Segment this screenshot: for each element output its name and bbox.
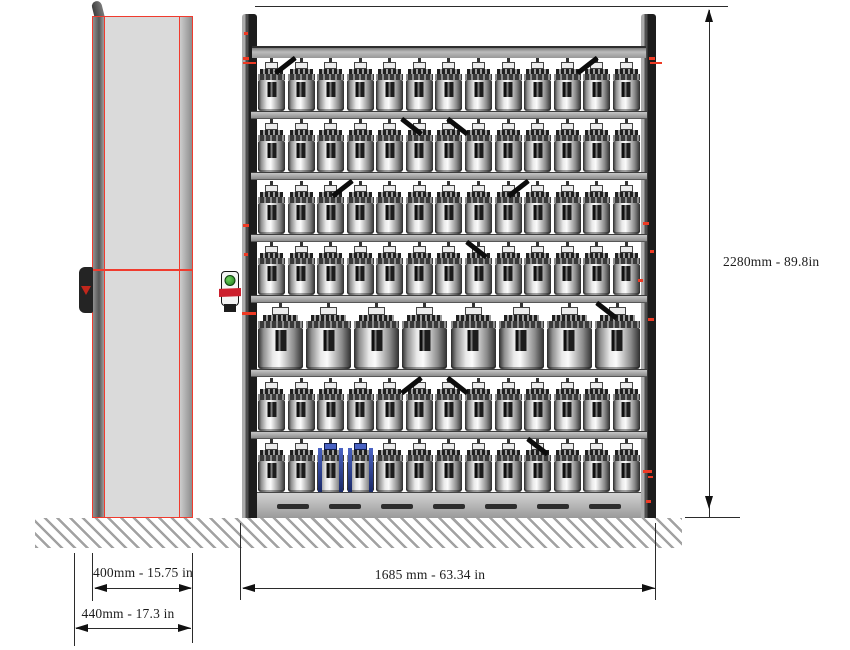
- gas-cylinder: [524, 378, 551, 431]
- cylinder-body: [524, 141, 551, 172]
- cylinder-body: [583, 203, 610, 234]
- cylinder-body: [495, 80, 522, 111]
- cylinder-body: [376, 80, 403, 111]
- gas-cylinder: [465, 181, 492, 234]
- cylinder-valve-head: [383, 123, 396, 130]
- arrowhead-left: [94, 584, 107, 592]
- cylinder-valve-head: [354, 185, 367, 192]
- cylinder-handle-slot: [468, 330, 479, 351]
- cylinder-valve-head: [320, 307, 337, 315]
- cylinder-body: [524, 461, 551, 492]
- cylinder-body: [258, 328, 303, 369]
- cylinder-shoulder: [451, 321, 496, 328]
- cylinder-body: [347, 80, 374, 111]
- cylinder-shoulder: [435, 197, 462, 203]
- base-vent-slot: [381, 504, 413, 509]
- gas-cylinder: [435, 181, 462, 234]
- gas-cylinder: [402, 303, 447, 369]
- cylinder-handle-slot: [474, 463, 483, 478]
- cylinder-handle-slot: [592, 266, 601, 281]
- gas-cylinder: [613, 439, 640, 492]
- gas-cylinder: [406, 58, 433, 111]
- cylinder-handle-slot: [297, 402, 306, 417]
- gas-cylinder: [258, 119, 285, 172]
- cylinder-handle-slot: [356, 266, 365, 281]
- cylinder-valve-head: [561, 62, 574, 69]
- cylinder-body: [554, 400, 581, 431]
- cabinet-side-view: [92, 16, 193, 518]
- cylinder-valve-head: [413, 443, 426, 450]
- cylinder-shoulder: [258, 394, 285, 400]
- cylinder-handle-slot: [474, 266, 483, 281]
- cylinder-valve-head: [502, 62, 515, 69]
- cylinder-shoulder: [406, 394, 433, 400]
- cylinder-handle-slot: [622, 143, 631, 158]
- cylinder-body: [583, 141, 610, 172]
- cylinder-handle-slot: [267, 266, 276, 281]
- cylinder-valve-head: [590, 443, 603, 450]
- cylinder-handle-slot: [415, 82, 424, 97]
- cylinder-handle-slot: [419, 330, 430, 351]
- cylinder-shoulder: [583, 455, 610, 461]
- gas-cylinder: [376, 181, 403, 234]
- cylinder-body: [554, 461, 581, 492]
- arrowhead-down: [705, 496, 713, 509]
- base-vent-slot: [589, 504, 621, 509]
- cylinder-valve-head: [531, 185, 544, 192]
- gas-cylinder: [554, 119, 581, 172]
- red-marker: [638, 279, 643, 282]
- cylinder-body: [258, 264, 285, 295]
- cylinder-body: [347, 461, 374, 492]
- cylinder-shoulder: [613, 394, 640, 400]
- base-vent-slot: [433, 504, 465, 509]
- regulator-base: [224, 304, 236, 312]
- cylinder-handle-slot: [533, 463, 542, 478]
- cylinder-valve-head: [383, 246, 396, 253]
- cylinder-valve-head: [472, 62, 485, 69]
- cylinder-shoulder: [583, 197, 610, 203]
- cylinder-body: [554, 264, 581, 295]
- cylinder-shoulder: [258, 197, 285, 203]
- cylinder-shoulder: [402, 321, 447, 328]
- cylinder-body: [524, 264, 551, 295]
- cylinder-valve-head: [620, 185, 633, 192]
- cylinder-body: [451, 328, 496, 369]
- cylinder-handle-slot: [622, 205, 631, 220]
- gas-cylinder: [613, 242, 640, 295]
- gas-cylinder: [406, 181, 433, 234]
- cylinder-body: [347, 141, 374, 172]
- cylinder-valve-head: [590, 123, 603, 130]
- cylinder-handle-slot: [385, 82, 394, 97]
- cylinder-handle-slot: [267, 402, 276, 417]
- arrowhead-right: [179, 584, 192, 592]
- gas-cylinder: [613, 58, 640, 111]
- gas-cylinder: [288, 181, 315, 234]
- cylinder-handle-slot: [533, 82, 542, 97]
- gas-cylinder-blue: [347, 439, 374, 492]
- red-marker: [643, 470, 652, 473]
- cylinder-valve-head: [265, 123, 278, 130]
- cylinder-valve-head: [272, 307, 289, 315]
- cylinder-shoulder: [613, 455, 640, 461]
- gas-cylinder: [288, 58, 315, 111]
- cylinder-body: [435, 461, 462, 492]
- arrowhead-right: [178, 624, 191, 632]
- cylinder-valve-head: [472, 123, 485, 130]
- arrowhead-left: [75, 624, 88, 632]
- cylinder-shoulder: [554, 455, 581, 461]
- gas-cylinder: [583, 181, 610, 234]
- cylinder-valve-head: [295, 185, 308, 192]
- ground-hatching: [35, 518, 682, 548]
- cylinder-body: [347, 264, 374, 295]
- cylinder-shoulder: [554, 197, 581, 203]
- gas-cylinder: [317, 58, 344, 111]
- gas-cylinder: [258, 242, 285, 295]
- cylinder-body: [402, 328, 447, 369]
- cylinder-body: [258, 203, 285, 234]
- cylinder-body: [495, 264, 522, 295]
- gas-cylinder: [347, 242, 374, 295]
- cylinder-body: [288, 400, 315, 431]
- cylinder-body: [613, 80, 640, 111]
- gas-cylinder: [376, 378, 403, 431]
- cylinder-body: [583, 264, 610, 295]
- cylinder-valve-head: [502, 382, 515, 389]
- cylinder-body: [306, 328, 351, 369]
- cylinder-valve-head: [531, 246, 544, 253]
- cylinder-valve-head: [561, 382, 574, 389]
- cylinder-valve-head: [295, 246, 308, 253]
- cylinder-body: [547, 328, 592, 369]
- cylinder-body: [406, 80, 433, 111]
- gas-cylinder: [347, 378, 374, 431]
- rack-shelf-area: [258, 58, 640, 492]
- cylinder-valve-head: [502, 123, 515, 130]
- cylinder-valve-head: [265, 443, 278, 450]
- red-marker: [648, 318, 654, 321]
- rack-base-plinth: [257, 492, 641, 518]
- cylinder-shoulder: [524, 394, 551, 400]
- cylinder-handle-slot: [356, 402, 365, 417]
- cylinder-valve-head: [324, 62, 337, 69]
- gas-cylinder: [465, 58, 492, 111]
- cylinder-valve-head: [531, 382, 544, 389]
- width-extension-line-left: [240, 523, 241, 600]
- cylinder-shoulder: [347, 455, 374, 461]
- red-marker: [650, 62, 662, 64]
- cylinder-handle-slot: [297, 143, 306, 158]
- cylinder-body: [347, 400, 374, 431]
- cylinder-handle-slot: [592, 82, 601, 97]
- cylinder-valve-head: [590, 185, 603, 192]
- cylinder-handle-slot: [326, 205, 335, 220]
- gas-cylinder: [465, 439, 492, 492]
- gas-cylinder: [258, 378, 285, 431]
- cylinder-handle-slot: [533, 402, 542, 417]
- cylinder-handle-slot: [516, 330, 527, 351]
- cylinder-body: [435, 80, 462, 111]
- cylinder-shoulder: [435, 394, 462, 400]
- cylinder-body: [583, 400, 610, 431]
- gas-cylinder: [451, 303, 496, 369]
- cylinder-handle-slot: [385, 205, 394, 220]
- rack-row-3: [258, 181, 640, 234]
- cylinder-body: [613, 461, 640, 492]
- gas-cylinder: [499, 303, 544, 369]
- cylinder-body: [465, 264, 492, 295]
- cylinder-shoulder: [554, 394, 581, 400]
- cylinder-handle-slot: [323, 330, 334, 351]
- height-dimension-label: 2280mm - 89.8in: [723, 254, 819, 270]
- gas-cylinder: [495, 58, 522, 111]
- cylinder-handle-slot: [563, 82, 572, 97]
- gas-cylinder: [435, 58, 462, 111]
- cylinder-body: [499, 328, 544, 369]
- gas-cylinder: [376, 119, 403, 172]
- cylinder-valve-head: [295, 123, 308, 130]
- cylinder-body: [258, 141, 285, 172]
- cabinet-left-frame: [93, 17, 104, 517]
- technical-drawing-canvas: 2280mm - 89.8in 1685 mm - 63.34 in 400mm…: [0, 0, 850, 650]
- cylinder-handle-slot: [444, 402, 453, 417]
- cylinder-shoulder: [465, 455, 492, 461]
- cylinder-handle-slot: [326, 463, 335, 478]
- cylinder-valve-head: [265, 185, 278, 192]
- cylinder-shoulder: [317, 455, 344, 461]
- depth-extension-line-outer: [74, 553, 75, 646]
- cylinder-body: [406, 203, 433, 234]
- cylinder-handle-slot: [622, 266, 631, 281]
- cylinder-valve-head: [354, 62, 367, 69]
- cylinder-shoulder: [288, 455, 315, 461]
- cylinder-valve-head: [620, 443, 633, 450]
- cylinder-shoulder: [288, 394, 315, 400]
- gas-cylinder: [547, 303, 592, 369]
- cylinder-body: [495, 461, 522, 492]
- rack-post-left: [242, 14, 257, 518]
- cylinder-shoulder: [258, 321, 303, 328]
- cylinder-handle-slot: [563, 205, 572, 220]
- cylinder-handle-slot: [297, 266, 306, 281]
- red-marker: [646, 500, 651, 503]
- cylinder-handle-slot: [563, 402, 572, 417]
- red-marker: [243, 62, 256, 64]
- cylinder-handle-slot: [326, 82, 335, 97]
- cabinet-right-frame: [179, 17, 192, 517]
- cylinder-body: [406, 264, 433, 295]
- cylinder-valve-head: [442, 62, 455, 69]
- cylinder-valve-head: [531, 62, 544, 69]
- cylinder-body: [288, 461, 315, 492]
- cylinder-shoulder: [583, 394, 610, 400]
- red-marker: [649, 57, 655, 60]
- rack-shelf: [251, 234, 647, 242]
- cylinder-shoulder: [376, 197, 403, 203]
- red-marker: [244, 32, 248, 35]
- cylinder-valve-head: [590, 246, 603, 253]
- cylinder-body: [317, 80, 344, 111]
- cylinder-body: [288, 80, 315, 111]
- cylinder-shoulder: [465, 197, 492, 203]
- depth-total-dimension-line: [76, 628, 191, 629]
- cylinder-valve-head: [590, 382, 603, 389]
- cylinder-handle-slot: [356, 143, 365, 158]
- gas-cylinder: [465, 378, 492, 431]
- cylinder-shoulder: [406, 455, 433, 461]
- cylinder-handle-slot: [563, 143, 572, 158]
- cylinder-body: [347, 203, 374, 234]
- cylinder-handle-slot: [474, 82, 483, 97]
- cylinder-body: [406, 400, 433, 431]
- cylinder-body: [465, 141, 492, 172]
- cylinder-handle-slot: [504, 463, 513, 478]
- cylinder-shoulder: [465, 394, 492, 400]
- cylinder-handle-slot: [622, 463, 631, 478]
- rack-shelf: [251, 295, 647, 303]
- cylinder-handle-slot: [504, 266, 513, 281]
- cylinder-body: [288, 264, 315, 295]
- cylinder-valve-head: [383, 185, 396, 192]
- cylinder-shoulder: [288, 197, 315, 203]
- cylinder-body: [376, 203, 403, 234]
- cylinder-shoulder: [435, 455, 462, 461]
- cylinder-body: [524, 203, 551, 234]
- cylinder-handle-slot: [371, 330, 382, 351]
- cylinder-valve-head: [295, 443, 308, 450]
- cylinder-handle-slot: [563, 266, 572, 281]
- gas-cylinder: [317, 119, 344, 172]
- cabinet-red-outline-line: [104, 17, 105, 517]
- gas-cylinder: [524, 58, 551, 111]
- cylinder-handle-slot: [326, 266, 335, 281]
- cylinder-shoulder: [406, 197, 433, 203]
- cabinet-red-divider-line: [93, 269, 192, 271]
- gas-cylinder: [524, 119, 551, 172]
- cylinder-body: [613, 400, 640, 431]
- cylinder-handle-slot: [356, 463, 365, 478]
- cylinder-handle-slot: [356, 205, 365, 220]
- bottom-extension-tick: [685, 517, 740, 518]
- gas-cylinder: [306, 303, 351, 369]
- cylinder-body: [317, 461, 344, 492]
- cylinder-valve-head: [354, 382, 367, 389]
- cylinder-valve-head: [620, 123, 633, 130]
- cylinder-handle-slot: [533, 205, 542, 220]
- gas-cylinder: [613, 378, 640, 431]
- cylinder-handle-slot: [385, 402, 394, 417]
- regulator-red-band: [219, 288, 241, 297]
- cylinder-body: [465, 203, 492, 234]
- cylinder-shoulder: [376, 455, 403, 461]
- cylinder-body: [258, 400, 285, 431]
- cylinder-body: [317, 203, 344, 234]
- gas-cylinder: [554, 242, 581, 295]
- rack-post-right: [641, 14, 656, 518]
- cylinder-valve-head: [416, 307, 433, 315]
- cylinder-handle-slot: [267, 463, 276, 478]
- cylinder-valve-head: [265, 246, 278, 253]
- cylinder-body: [288, 141, 315, 172]
- gas-cylinder: [376, 242, 403, 295]
- red-marker: [244, 253, 248, 256]
- cylinder-body: [354, 328, 399, 369]
- cylinder-handle-slot: [385, 143, 394, 158]
- cylinder-handle-slot: [504, 205, 513, 220]
- gas-cylinder: [495, 119, 522, 172]
- cylinder-body: [376, 264, 403, 295]
- gas-cylinder-blue: [317, 439, 344, 492]
- rack-row-1: [258, 58, 640, 111]
- cylinder-shoulder: [258, 455, 285, 461]
- top-extension-line: [255, 6, 728, 7]
- cylinder-valve-head: [561, 185, 574, 192]
- gas-cylinder: [347, 119, 374, 172]
- rack-top-beam: [252, 46, 646, 58]
- cylinder-shoulder: [347, 394, 374, 400]
- cylinder-handle-slot: [474, 402, 483, 417]
- gas-cylinder: [258, 181, 285, 234]
- cylinder-valve-head: [442, 443, 455, 450]
- cylinder-shoulder: [524, 197, 551, 203]
- cylinder-handle-slot: [444, 143, 453, 158]
- cylinder-body: [258, 80, 285, 111]
- cylinder-body: [288, 203, 315, 234]
- cylinder-handle-slot: [326, 143, 335, 158]
- height-dimension-line: [709, 10, 710, 518]
- cylinder-valve-head: [561, 246, 574, 253]
- arrowhead-right: [642, 584, 655, 592]
- cylinder-valve-head: [513, 307, 530, 315]
- cylinder-valve-head: [295, 62, 308, 69]
- cylinder-body: [613, 141, 640, 172]
- gas-cylinder: [406, 439, 433, 492]
- gas-cylinder: [554, 439, 581, 492]
- cylinder-handle-slot: [474, 143, 483, 158]
- gas-cylinder: [495, 242, 522, 295]
- cylinder-handle-slot: [444, 82, 453, 97]
- cylinder-handle-slot: [297, 463, 306, 478]
- cylinder-shoulder: [499, 321, 544, 328]
- cylinder-body: [524, 400, 551, 431]
- width-dimension-label: 1685 mm - 63.34 in: [375, 567, 485, 583]
- cylinder-shoulder: [354, 321, 399, 328]
- gas-cylinder: [595, 303, 640, 369]
- green-indicator-light: [225, 275, 236, 286]
- cylinder-handle-slot: [415, 205, 424, 220]
- cylinder-handle-slot: [385, 266, 394, 281]
- depth-dimension-line: [95, 588, 191, 589]
- cylinder-valve-head: [472, 185, 485, 192]
- cylinder-shoulder: [306, 321, 351, 328]
- rack-shelf: [251, 172, 647, 180]
- cylinder-handle-slot: [504, 402, 513, 417]
- base-vent-slot: [537, 504, 569, 509]
- cylinder-shoulder: [613, 197, 640, 203]
- cylinder-handle-slot: [533, 266, 542, 281]
- gas-cylinder: [495, 378, 522, 431]
- cylinder-handle-slot: [385, 463, 394, 478]
- gas-cylinder: [583, 242, 610, 295]
- cylinder-valve-head: [502, 443, 515, 450]
- cylinder-handle-slot: [297, 205, 306, 220]
- gas-cylinder: [288, 378, 315, 431]
- cylinder-body: [317, 400, 344, 431]
- gas-cylinder: [288, 119, 315, 172]
- rack-shelf: [251, 431, 647, 439]
